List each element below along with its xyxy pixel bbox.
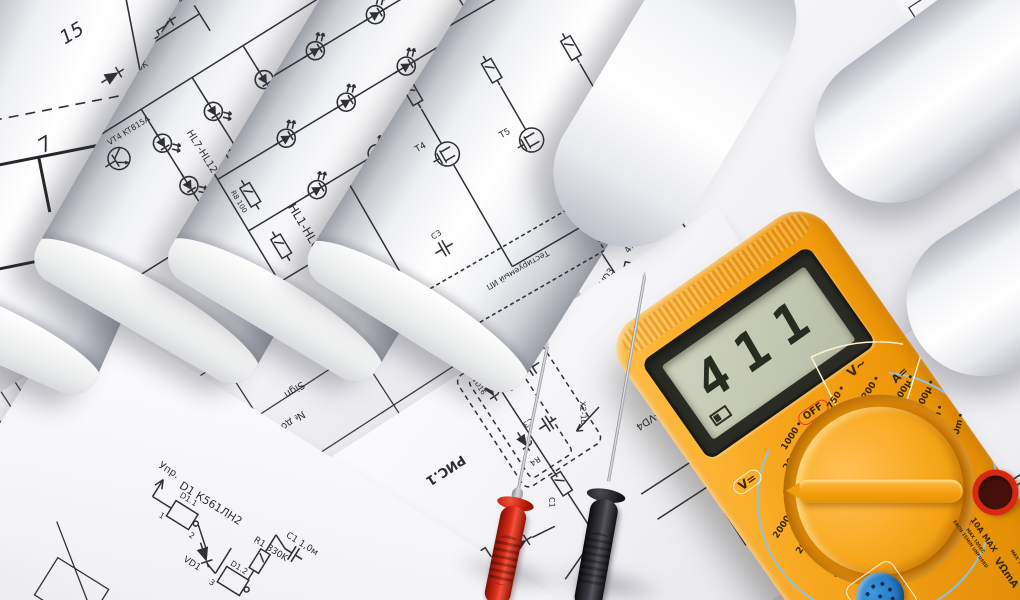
- schematic-label: X2-1b: [578, 401, 587, 425]
- dial-vac-header: V~: [845, 357, 869, 381]
- probe-handle: [573, 497, 620, 600]
- socket-holes: [877, 594, 883, 600]
- probe-needle: [607, 276, 646, 481]
- schematic-label: C1: [547, 497, 556, 508]
- probe-needle: [517, 346, 549, 490]
- rotary-knob-pointer: [797, 480, 963, 503]
- dial-vdc-header: V=: [730, 466, 765, 497]
- scene-blueprints-and-multimeter: Sign № док Раз BS-A510: [0, 0, 1020, 600]
- probe-handle: [483, 504, 528, 600]
